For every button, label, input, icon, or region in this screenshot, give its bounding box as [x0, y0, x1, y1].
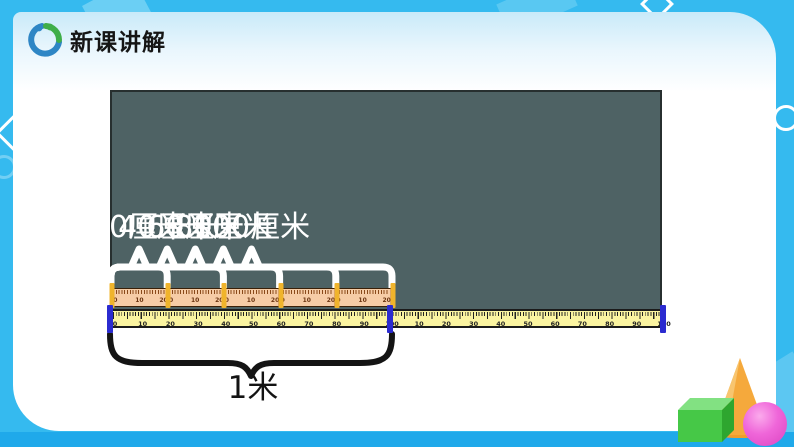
segment-ticks: [336, 290, 389, 294]
segment-ticks: [113, 290, 166, 294]
segmented-20cm-ruler: 0102001020010200102001020: [111, 288, 392, 307]
ruler-number: 40: [496, 320, 505, 328]
ruler-segment: 01020: [168, 289, 224, 306]
slide-header: 新课讲解: [26, 20, 166, 60]
slide: 新课讲解 20厘米40厘米60厘米80厘米100厘米 0102001020010…: [0, 0, 794, 447]
segment-boundary-marker: [278, 283, 283, 308]
cm-label: 100厘米: [193, 202, 310, 246]
ruler-number: 60: [551, 320, 560, 328]
ruler-number: 40: [221, 320, 230, 328]
ruler-number: 60: [277, 320, 286, 328]
segment-ticks: [169, 290, 222, 294]
segment-boundary-marker: [334, 283, 339, 308]
ruler-number: 70: [578, 320, 587, 328]
segment-boundary-marker: [166, 283, 171, 308]
ruler-segment: 01020: [335, 289, 391, 306]
one-meter-label: 1米: [228, 362, 279, 407]
meter-marker-0m: [107, 305, 113, 333]
ruler-number: 0: [113, 320, 118, 328]
ruler-number: 20: [442, 320, 451, 328]
ruler-number: 70: [304, 320, 313, 328]
ruler-number: 90: [632, 320, 641, 328]
ruler-number: 30: [469, 320, 478, 328]
segment-boundary-marker: [222, 283, 227, 308]
ruler-segment: 01020: [224, 289, 280, 306]
meter-marker-1m: [387, 305, 393, 333]
ruler-number: 50: [249, 320, 258, 328]
ruler-number: 50: [523, 320, 532, 328]
people-circle-logo-icon: [26, 22, 62, 58]
segment-number: 10: [303, 297, 311, 304]
ruler-number: 80: [605, 320, 614, 328]
ruler-number: 90: [360, 320, 369, 328]
ruler-number: 20: [166, 320, 175, 328]
segment-ticks: [225, 290, 278, 294]
segment-number: 10: [135, 297, 143, 304]
ruler-segment: 01020: [112, 289, 168, 306]
pink-sphere-icon: [743, 402, 787, 446]
geometry-shapes-decoration: [650, 340, 794, 447]
segment-number: 10: [191, 297, 199, 304]
meter-marker-2m: [660, 305, 666, 333]
green-cube-icon: [678, 398, 734, 442]
blackboard: [110, 90, 662, 311]
ruler-number: 10: [415, 320, 424, 328]
page-title: 新课讲解: [70, 23, 166, 57]
ruler-number: 80: [332, 320, 341, 328]
segment-ticks: [280, 290, 333, 294]
segment-number: 10: [358, 297, 366, 304]
segment-number: 10: [247, 297, 255, 304]
ruler-number: 10: [138, 320, 147, 328]
ruler-number: 30: [194, 320, 203, 328]
ring-decoration: [773, 105, 794, 131]
ruler-segment: 01020: [279, 289, 335, 306]
